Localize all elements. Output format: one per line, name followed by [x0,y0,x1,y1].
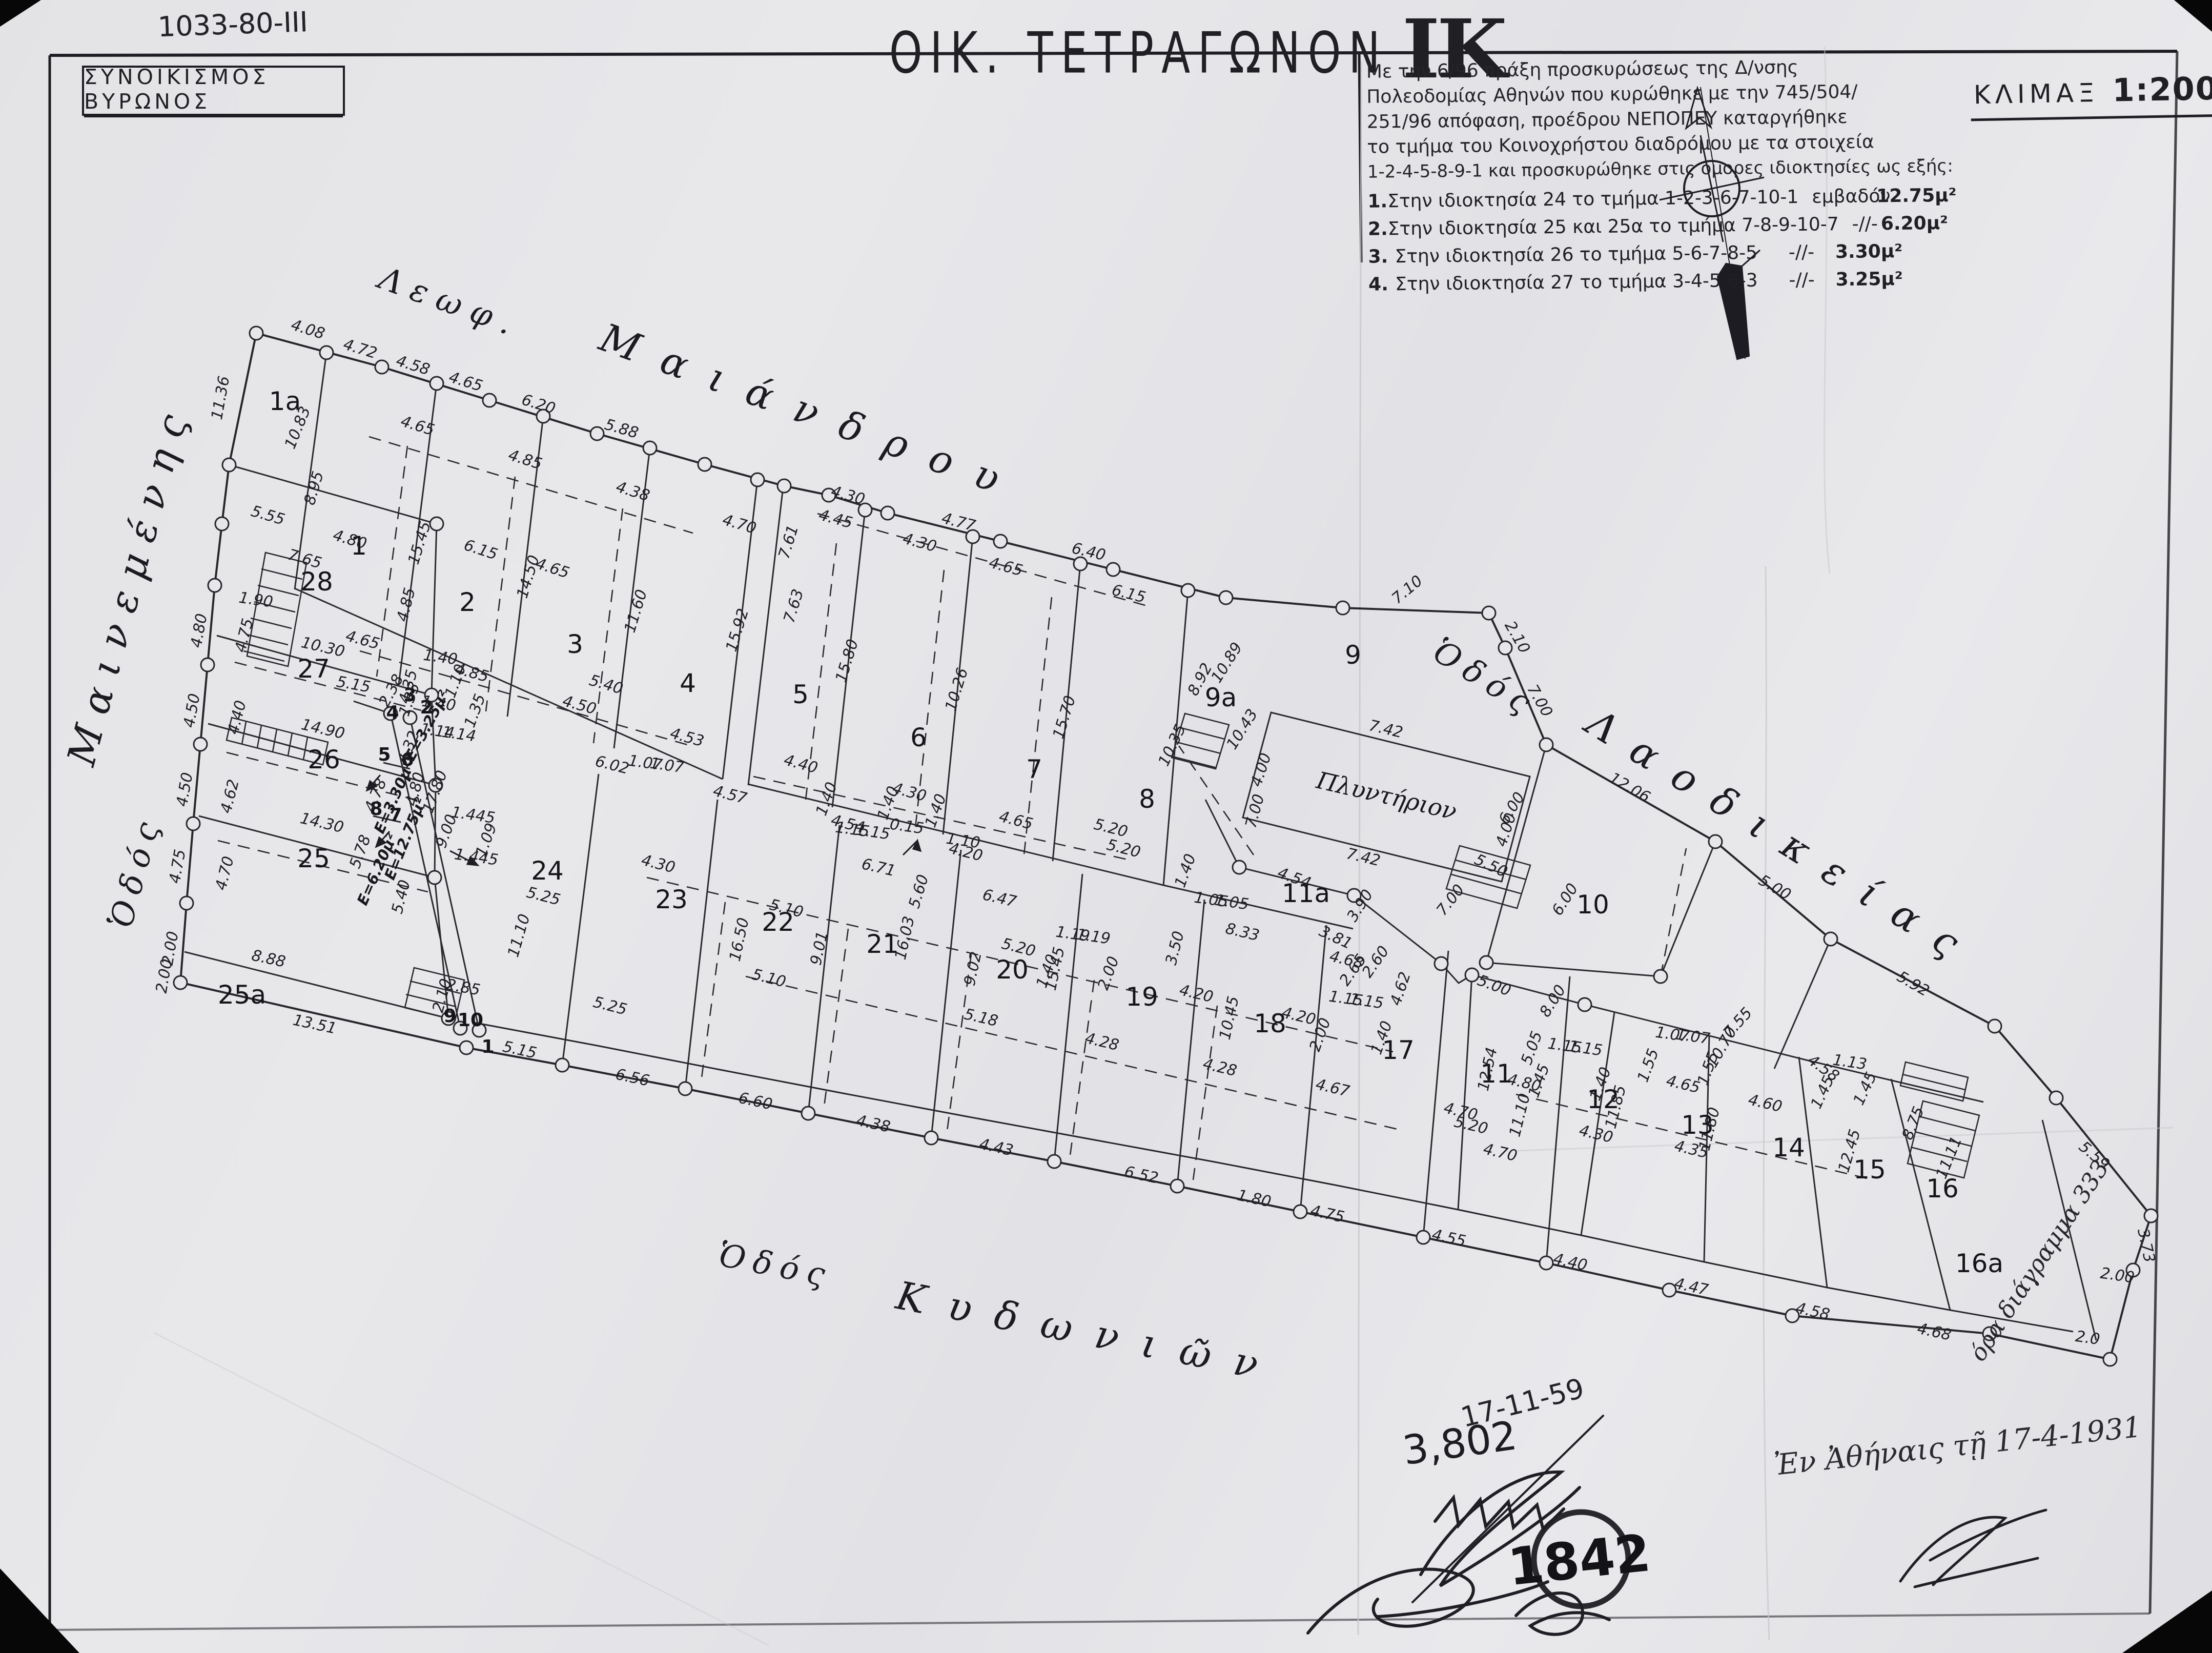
dimension-label: 4.08 [289,316,327,343]
survey-node [222,458,236,472]
scale-label: ΚΛΙΜΑΞ [1973,78,2099,110]
note-item-tx: Στην ιδιοκτησία 27 το τμήμα 3-4-5-6-3 [1395,267,1758,298]
dimension-label: 15.45 [405,519,435,566]
survey-node [460,1041,473,1054]
dimension-label: 1.07 [649,754,685,777]
dimension-label: 4.40 [1552,1250,1589,1275]
parcel-number-label: 23 [655,885,688,914]
survey-node [1435,957,1448,970]
scanned-cadastral-sheet: Λεωφ.ΜαιάνδρουὉδόςΜαινεμένηςὉδόςΛαοδικεί… [0,0,2212,1653]
signature-scribble-4 [1516,1593,1609,1635]
note-item-ar: 3.30μ² [1835,238,1903,266]
dimension-label: 5.92 [1894,968,1932,1001]
dimension-label: 2.0 [2074,1328,2101,1349]
parcel-number-label: 25 [297,844,330,873]
survey-node [1654,970,1667,983]
note-item-tx: Στην ιδιοκτησία 24 το τμήμα 1-2-3-6-7-10… [1387,183,1799,215]
dimension-label: 4.65 [344,627,382,653]
dimension-label: 6.52 [1123,1163,1160,1188]
dimension-label: 4.58 [1794,1299,1832,1324]
dimension-label: 4.77 [940,509,977,535]
street-name-label: Ὁδός [102,810,168,932]
note-item-mk: -//- [1771,266,1833,294]
survey-node [802,1107,815,1120]
dimension-label: 5.55 [249,502,287,529]
parcel-number-label: 2 [459,587,476,617]
dimension-label: 4.58 [394,352,432,379]
laundry-building-label: Πλυντήριον [1314,766,1460,826]
dimension-label: 5.25 [591,993,629,1019]
dimension-label: 16.50 [726,916,753,963]
note-item: 1.Στην ιδιοκτησία 24 το τμήμα 1-2-3-6-7-… [1367,182,1934,216]
survey-node [1709,835,1722,848]
survey-node [215,517,229,530]
dimension-label: 4.65 [534,555,571,582]
dimension-label: 4.55 [1430,1226,1468,1251]
dimension-label: 4.43 [978,1135,1015,1160]
dimension-label: 4.60 [1747,1091,1784,1116]
survey-node [375,360,388,374]
dimension-label: 6.47 [981,886,1018,911]
survey-node [643,441,657,455]
survey-node [187,817,200,830]
dimension-label: 4.30 [829,482,867,508]
dimension-label: 1.45 [1850,1069,1880,1108]
dimension-label: 4.75 [232,617,257,654]
dimension-label: 14.30 [298,809,345,836]
dimension-label: 7.42 [1345,845,1382,870]
dimension-label: 10.35 [1155,722,1190,769]
dimension-label: 4.75 [1309,1202,1346,1227]
parcel-number-label: 27 [297,654,330,684]
survey-node [925,1131,938,1145]
survey-node [1578,998,1591,1011]
dimension-label: 1.15 [1567,1037,1604,1060]
survey-node [201,658,214,671]
parcel-number-label: 26 [308,745,340,774]
dimension-label: 7.00 [1433,881,1468,919]
note-item-no: 2. [1368,215,1388,243]
dimension-label: 4.50 [180,692,204,729]
survey-node [320,346,333,359]
dimension-label: 4.65 [447,368,485,395]
dimension-label: 10.45 [1216,994,1243,1041]
dimension-label: 4.20 [1178,981,1215,1006]
survey-nodes [174,326,2158,1366]
dimension-label: 1.90 [238,589,274,611]
parcel-number-label: 24 [531,856,564,886]
dimension-label: 11.36 [208,375,233,421]
survey-node [1540,738,1553,751]
dimension-label: 9.01 [807,930,832,967]
scale-note: ΚΛΙΜΑΞ 1:200 [1970,70,2212,121]
dimension-label: 5.05 [1518,1029,1546,1067]
scale-value: 1:200 [2112,70,2212,109]
document-number: 1033-80-ΙΙΙ [157,6,309,43]
dimension-label: 4.68 [1916,1320,1953,1344]
dimension-label: 10.43 [1223,706,1261,752]
note-line: 1-2-4-5-8-9-1 και προσκυρώθηκε στις όμορ… [1367,154,1934,185]
dimension-label: 5.50 [1471,850,1510,881]
survey-node [1107,563,1120,576]
dimension-label: 3.50 [1162,929,1188,967]
survey-node [2103,1353,2117,1366]
dimension-label: 6.56 [614,1066,651,1090]
street-name-label: Λαοδικείας [1576,698,1986,978]
survey-node [1499,641,1512,655]
dimension-label: 7.10 [1388,572,1426,608]
handwritten-annotation: Ἐν Ἀθήναις τῇ 17-4-1931 [1773,1411,2143,1482]
survey-node [1048,1155,1061,1168]
dimension-label: 7.63 [780,587,807,625]
dimension-label: 4.00 [1247,751,1275,789]
survey-node [1417,1231,1430,1244]
survey-node [679,1082,692,1095]
note-items: 1.Στην ιδιοκτησία 24 το τμήμα 1-2-3-6-7-… [1367,182,1935,299]
dimension-label: 4.40 [782,751,820,777]
note-item-ar: 3.25μ² [1835,266,1903,294]
dimension-label: 8.88 [250,947,288,971]
dimension-label: 5.40 [587,671,625,698]
dimension-label: 5.88 [603,416,641,442]
survey-node [1171,1179,1184,1193]
dimension-label: 1.35 [461,691,489,730]
district-box: ΣΥΝΟΙΚΙΣΜΟΣ ΒΥΡΩΝΟΣ [82,66,345,116]
dimension-label: 4.30 [640,851,677,877]
dimension-label: 4.62 [217,778,243,815]
dimension-label: 8.95 [301,469,327,507]
survey-node [1480,956,1493,969]
parcel-number-label: 16a [1955,1249,2003,1278]
survey-node [1465,968,1479,982]
dimension-label: 5.40 [388,878,414,915]
dimension-label: 1.80 [1236,1187,1273,1211]
dimension-label: 5.15 [501,1038,539,1063]
dimension-label: 5.25 [525,884,562,909]
note-item-ar: 12.75μ² [1876,182,1957,211]
parcel-number-label: 25a [218,980,266,1010]
survey-node [2144,1209,2158,1222]
note-item: 4.Στην ιδιοκτησία 27 το τμήμα 3-4-5-6-3-… [1368,265,1935,299]
dimension-label: 4.85 [394,586,419,623]
survey-node [1540,1256,1553,1270]
dimension-label: 4.67 [1314,1075,1351,1100]
survey-node [1219,591,1233,604]
dimension-label: 11.10 [1506,1092,1534,1139]
note-item-no: 4. [1368,271,1396,299]
survey-node [881,506,894,520]
corridor-point-label: 10 [458,1010,483,1031]
street-name-label: Κυδωνιῶν [892,1272,1285,1392]
dimension-label: 15.92 [723,606,753,654]
survey-node [194,738,207,751]
survey-node [428,871,441,884]
survey-node [751,473,764,486]
survey-node [430,377,443,390]
survey-node [1482,606,1496,620]
signature-scribble-1 [1435,1498,1564,1529]
dimension-label: 2.00 [153,957,176,994]
dimension-label: 6.15 [462,536,500,564]
survey-node [1336,601,1349,615]
dimension-label: 1.05 [1214,891,1250,914]
dimension-label: 5.00 [1755,871,1794,904]
dimension-label: 5.18 [962,1005,1000,1030]
dimension-label: 6.60 [737,1089,774,1114]
dimension-label: 5.00 [1475,971,1513,1000]
dimension-label: 4.28 [1083,1029,1121,1054]
survey-node [590,427,604,440]
dimension-label: 7.00 [1242,792,1268,830]
parcel-number-label: 8 [1139,784,1155,814]
dimension-label: 4.50 [173,771,197,808]
dimension-label: 5.10 [750,966,788,991]
dimension-label: 15.70 [1050,693,1080,741]
dimension-label: 4.70 [721,511,759,538]
survey-node [250,326,263,340]
survey-node [994,535,1007,548]
survey-node [174,976,187,989]
district-label: ΣΥΝΟΙΚΙΣΜΟΣ ΒΥΡΩΝΟΣ [84,65,343,117]
dimension-label: 4.70 [1442,1099,1480,1124]
parcel-number-label: 7 [1026,754,1042,784]
note-item-mk: εμβαδόν [1812,182,1874,211]
street-name-label: Λεωφ. [372,258,527,345]
note-item-mk: -//- [1852,210,1878,238]
dimension-label: 4.62 [1387,970,1415,1008]
dimension-label: 4.45 [817,506,855,532]
parcel-number-label: 6 [910,723,927,752]
dimension-label: 1.55 [1634,1046,1663,1085]
dimension-label: 1.40 [1171,851,1200,890]
dimension-label: 10.26 [942,666,972,713]
title-prefix: ΟΙΚ. ΤΕΤΡΑΓΩΝΟΝ [889,21,1388,86]
dimension-label: 8.00 [1536,982,1569,1020]
survey-node [777,479,791,493]
dimension-label: 4.70 [1482,1140,1519,1165]
dimension-label: 6.15 [1110,581,1148,607]
dimension-label: 10.89 [1207,639,1246,686]
survey-node [180,896,193,910]
parcel-number-label: 5 [792,680,809,709]
street-name-label: Μαινεμένης [58,397,199,771]
dimension-label: 5.60 [905,872,932,910]
parcel-number-label: 14 [1772,1133,1805,1162]
dimension-label: 4.53 [668,724,706,750]
note-item-tx: Στην ιδιοκτησία 26 το τμήμα 5-6-7-8-5 [1395,239,1757,271]
survey-node [483,394,496,407]
signature-scribble-5 [1900,1510,2046,1587]
survey-node [1988,1019,2001,1033]
parcel-number-label: 15 [1853,1155,1886,1185]
dimension-label: 11.11 [1933,1134,1966,1181]
parcel-number-label: 9a [1205,683,1237,712]
dimension-label: 4.47 [1673,1275,1710,1299]
parcel-number-label: 19 [1125,982,1158,1012]
parcel-number-label: 9 [1345,640,1361,670]
dimension-label: 15.80 [832,637,863,684]
dimension-label: 2.00 [1094,954,1123,992]
dimension-label: 11.10 [504,912,534,959]
survey-node [1233,861,1246,874]
dimension-label: 5.20 [1092,815,1130,841]
dimension-label: 9.02 [961,950,986,988]
dimension-label: 4.40 [224,699,250,736]
dimension-label: 4.80 [331,526,369,553]
parcel-number-label: 20 [996,955,1029,985]
dimension-label: 16.03 [892,914,918,961]
dimension-label: 11.60 [621,587,651,635]
dimension-label: 1.15 [1348,990,1385,1013]
note-item-tx: Στην ιδιοκτησία 25 και 25α το τμήμα 7-8-… [1388,211,1839,243]
dimension-label: 13.51 [291,1011,338,1038]
street-name-label: Μαιάνδρου [593,314,1029,510]
note-item-ar: 6.20μ² [1881,210,1949,238]
dimension-label: 1.45 [1807,1073,1838,1111]
dimension-label: 4.75 [166,848,190,885]
parcel-number-label: 3 [567,629,583,659]
note-item-no: 1. [1367,188,1387,215]
parcel-number-label: 10 [1576,890,1609,920]
note-item-mk: -//- [1771,238,1833,267]
dimension-label: 4.65 [987,554,1025,580]
dimension-label: 4.30 [901,529,939,556]
dimension-label: 6.71 [860,855,897,880]
dimension-label: 8.33 [1224,920,1261,945]
dimension-label: 4.50 [561,692,599,718]
dimension-label: 4.80 [188,612,211,649]
survey-node [1181,584,1195,597]
dimension-label: 4.38 [855,1112,892,1136]
dimension-label: 4.28 [1201,1055,1239,1080]
corridor-point-label: 5 [378,744,391,765]
dimension-label: 4.65 [399,412,437,439]
dimension-label: 1.19 [1075,926,1112,948]
survey-node [1824,932,1837,946]
survey-node [1294,1205,1307,1218]
survey-node [556,1058,569,1072]
survey-node [208,579,221,592]
dimension-label: 4.70 [212,854,238,892]
street-name-label: Ὁδός [715,1236,836,1295]
corridor-point-label: 1 [481,1036,494,1057]
proskyrosis-note: Με την 6/96 πράξη προσκυρώσεως της Δ/νση… [1366,53,1935,299]
note-item-no: 3. [1368,243,1395,271]
handwritten-annotation: 3,802 [1400,1413,1520,1474]
dimension-label: 7.61 [775,523,802,561]
handwritten-annotation: 1842 [1505,1523,1653,1597]
survey-node [2050,1091,2063,1105]
parcel-number-label: 4 [680,668,696,698]
survey-node [698,458,711,471]
dimension-label: 0.15 [889,815,925,838]
